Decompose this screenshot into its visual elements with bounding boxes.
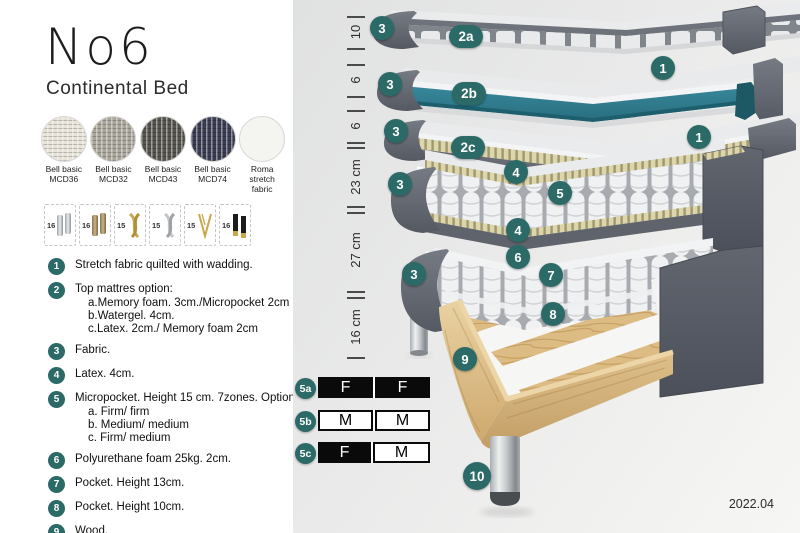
leg-cylinder-bronze-icon: [91, 211, 109, 239]
callout-badge: 3: [388, 172, 412, 196]
leg-height: 15: [187, 221, 196, 230]
leg-option: 15: [114, 204, 146, 246]
spec-item-text: Pocket. Height 13cm.: [75, 476, 184, 491]
leg-height: 16: [222, 221, 231, 230]
callout-badge: 4: [506, 218, 530, 242]
fabric-swatch: Romastretch fabric: [238, 116, 286, 194]
callout-badge: 3: [370, 16, 394, 40]
fabric-swatch-circle: [239, 116, 285, 162]
spec-item: 7 Pocket. Height 13cm.: [48, 476, 287, 493]
spec-item: 5 Micropocket. Height 15 cm. 7zones. Opt…: [48, 391, 287, 445]
spec-item-text: Wood.: [75, 524, 108, 533]
firmness-row: F F: [318, 377, 430, 398]
version-date: 2022.04: [729, 497, 774, 511]
spec-item-text: Latex. 4cm.: [75, 367, 134, 382]
fabric-swatch-label: Bell basicMCD36: [40, 165, 88, 185]
spec-item-number: 7: [48, 476, 65, 493]
dimension-tick: [347, 212, 365, 214]
firmness-cell: M: [318, 410, 373, 431]
product-sheet: No6 Continental Bed Bell basicMCD36 Bell…: [0, 0, 800, 533]
fabric-swatch: Bell basicMCD32: [90, 116, 138, 194]
firmness-row-badge: 5c: [295, 443, 316, 464]
fabric-swatch-circle: [90, 116, 136, 162]
leg-height: 15: [117, 221, 126, 230]
product-title: No6: [45, 22, 293, 72]
spec-item: 1 Stretch fabric quilted with wadding.: [48, 258, 287, 275]
callout-badge: 1: [687, 125, 711, 149]
product-subtitle: Continental Bed: [46, 78, 293, 100]
spec-item-sub: a.Memory foam. 3cm./Micropocket 2cm: [88, 297, 289, 310]
spec-item-number: 9: [48, 524, 65, 533]
callout-badge: 8: [541, 302, 565, 326]
spec-item-number: 4: [48, 367, 65, 384]
spec-item-sub: c. Firm/ medium: [88, 432, 298, 445]
spec-item: 8 Pocket. Height 10cm.: [48, 500, 287, 517]
callout-badge: 4: [504, 160, 528, 184]
leg-twisted-silver-icon: [161, 211, 179, 239]
callout-badge: 3: [402, 262, 426, 286]
spec-item-text: Stretch fabric quilted with wadding.: [75, 258, 253, 273]
leg-cylinder-silver-icon: [56, 211, 74, 239]
spec-item: 4 Latex. 4cm.: [48, 367, 287, 384]
spec-item-number: 6: [48, 452, 65, 469]
spec-item-text: Micropocket. Height 15 cm. 7zones. Optio…: [75, 391, 298, 406]
fabric-swatch-label: Bell basicMCD32: [90, 165, 138, 185]
leg-height: 15: [152, 221, 161, 230]
leg-options: 16 16 15 15: [44, 204, 293, 246]
spec-item-sub: a. Firm/ firm: [88, 406, 298, 419]
leg-option: 16: [44, 204, 76, 246]
spec-item: 2 Top mattres option: a.Memory foam. 3cm…: [48, 282, 287, 336]
fabric-swatch-label: Bell basicMCD74: [189, 165, 237, 185]
spec-item: 6 Polyurethane foam 25kg. 2cm.: [48, 452, 287, 469]
callout-badge: 10: [463, 462, 491, 490]
spec-item-text: Fabric.: [75, 343, 110, 358]
callout-badge: 2c: [451, 136, 485, 159]
leg-square-black-gold-icon: [231, 211, 249, 239]
leg-height: 16: [47, 221, 56, 230]
fabric-swatch: Bell basicMCD74: [189, 116, 237, 194]
callout-badge: 9: [453, 347, 477, 371]
firmness-cell: F: [318, 377, 373, 398]
spec-item-number: 2: [48, 282, 65, 299]
fabric-swatch: Bell basicMCD43: [139, 116, 187, 194]
dimension-label: 27 cm: [348, 215, 364, 285]
spec-item-number: 3: [48, 343, 65, 360]
layer-watergel: [377, 56, 800, 128]
fabric-swatch-circle: [41, 116, 87, 162]
fabric-swatch: Bell basicMCD36: [40, 116, 88, 194]
fabric-swatch-circle: [190, 116, 236, 162]
callout-badge: 7: [539, 263, 563, 287]
firmness-row: M M: [318, 410, 430, 431]
dimension-label: 23 cm: [348, 142, 364, 212]
spec-item: 9 Wood.: [48, 524, 287, 533]
leg-hairpin-gold-icon: [196, 211, 214, 239]
fabric-swatch-label: Bell basicMCD43: [139, 165, 187, 185]
spec-item-number: 8: [48, 500, 65, 517]
dimension-label: 16 cm: [348, 292, 364, 362]
spec-item-number: 5: [48, 391, 65, 408]
firmness-row-badge: 5b: [295, 411, 316, 432]
spec-item-sub: c.Latex. 2cm./ Memory foam 2cm: [88, 323, 289, 336]
firmness-row-badge: 5a: [295, 378, 316, 399]
firmness-cell: M: [375, 410, 430, 431]
firmness-cell: F: [375, 377, 430, 398]
spec-list: 1 Stretch fabric quilted with wadding. 2…: [0, 258, 293, 533]
spec-item-text: Top mattres option:: [75, 282, 289, 297]
callout-badge: 5: [548, 181, 572, 205]
leg-twisted-gold-icon: [126, 211, 144, 239]
spec-item-sub: b. Medium/ medium: [88, 419, 298, 432]
callout-badge: 1: [651, 56, 675, 80]
info-panel: No6 Continental Bed Bell basicMCD36 Bell…: [0, 0, 293, 533]
spec-item-text: Pocket. Height 10cm.: [75, 500, 184, 515]
callout-badge: 2a: [449, 25, 483, 48]
fabric-swatches: Bell basicMCD36 Bell basicMCD32 Bell bas…: [40, 116, 286, 194]
leg-height: 16: [82, 221, 91, 230]
spec-item: 3 Fabric.: [48, 343, 287, 360]
layer-stretch-top: [373, 2, 800, 54]
spec-item-sub: b.Watergel. 4cm.: [88, 310, 289, 323]
callout-badge: 3: [378, 72, 402, 96]
firmness-cell: M: [373, 442, 430, 463]
diagram-panel: 10 6 6 23 cm 27 cm 16 cm 3 2a 1 3 2b 3 2…: [293, 0, 800, 533]
leg-option: 15: [149, 204, 181, 246]
fabric-swatch-circle: [140, 116, 186, 162]
spec-item-text: Polyurethane foam 25kg. 2cm.: [75, 452, 231, 467]
leg-option: 16: [79, 204, 111, 246]
firmness-cell: F: [318, 442, 371, 463]
spec-item-number: 1: [48, 258, 65, 275]
leg-option: 16: [219, 204, 251, 246]
firmness-row: F M: [318, 442, 430, 463]
callout-badge: 2b: [452, 82, 486, 105]
leg-option: 15: [184, 204, 216, 246]
callout-badge: 6: [506, 245, 530, 269]
callout-badge: 3: [384, 119, 408, 143]
fabric-swatch-label: Romastretch fabric: [238, 165, 286, 194]
